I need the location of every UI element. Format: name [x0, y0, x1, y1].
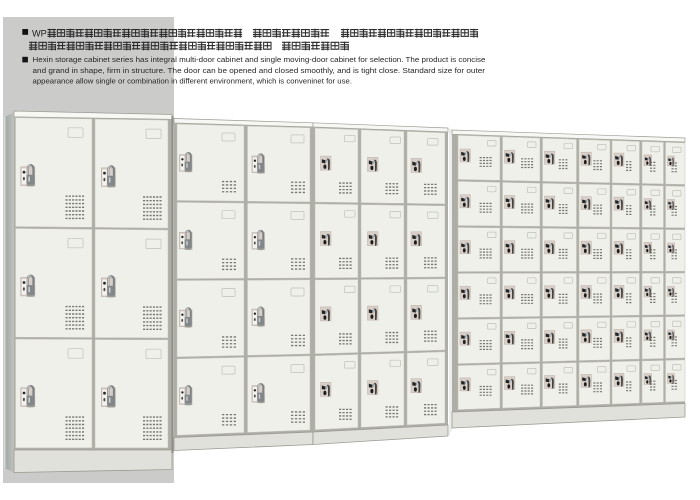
- svg-text:appearance allow single or com: appearance allow single or combination i…: [33, 77, 353, 86]
- svg-text:and grand in shape, firm in st: and grand in shape, firm in structure. T…: [33, 66, 486, 75]
- svg-text:Hexin storage cabinet series h: Hexin storage cabinet series has integra…: [33, 55, 486, 64]
- svg-text:WP: WP: [32, 29, 47, 39]
